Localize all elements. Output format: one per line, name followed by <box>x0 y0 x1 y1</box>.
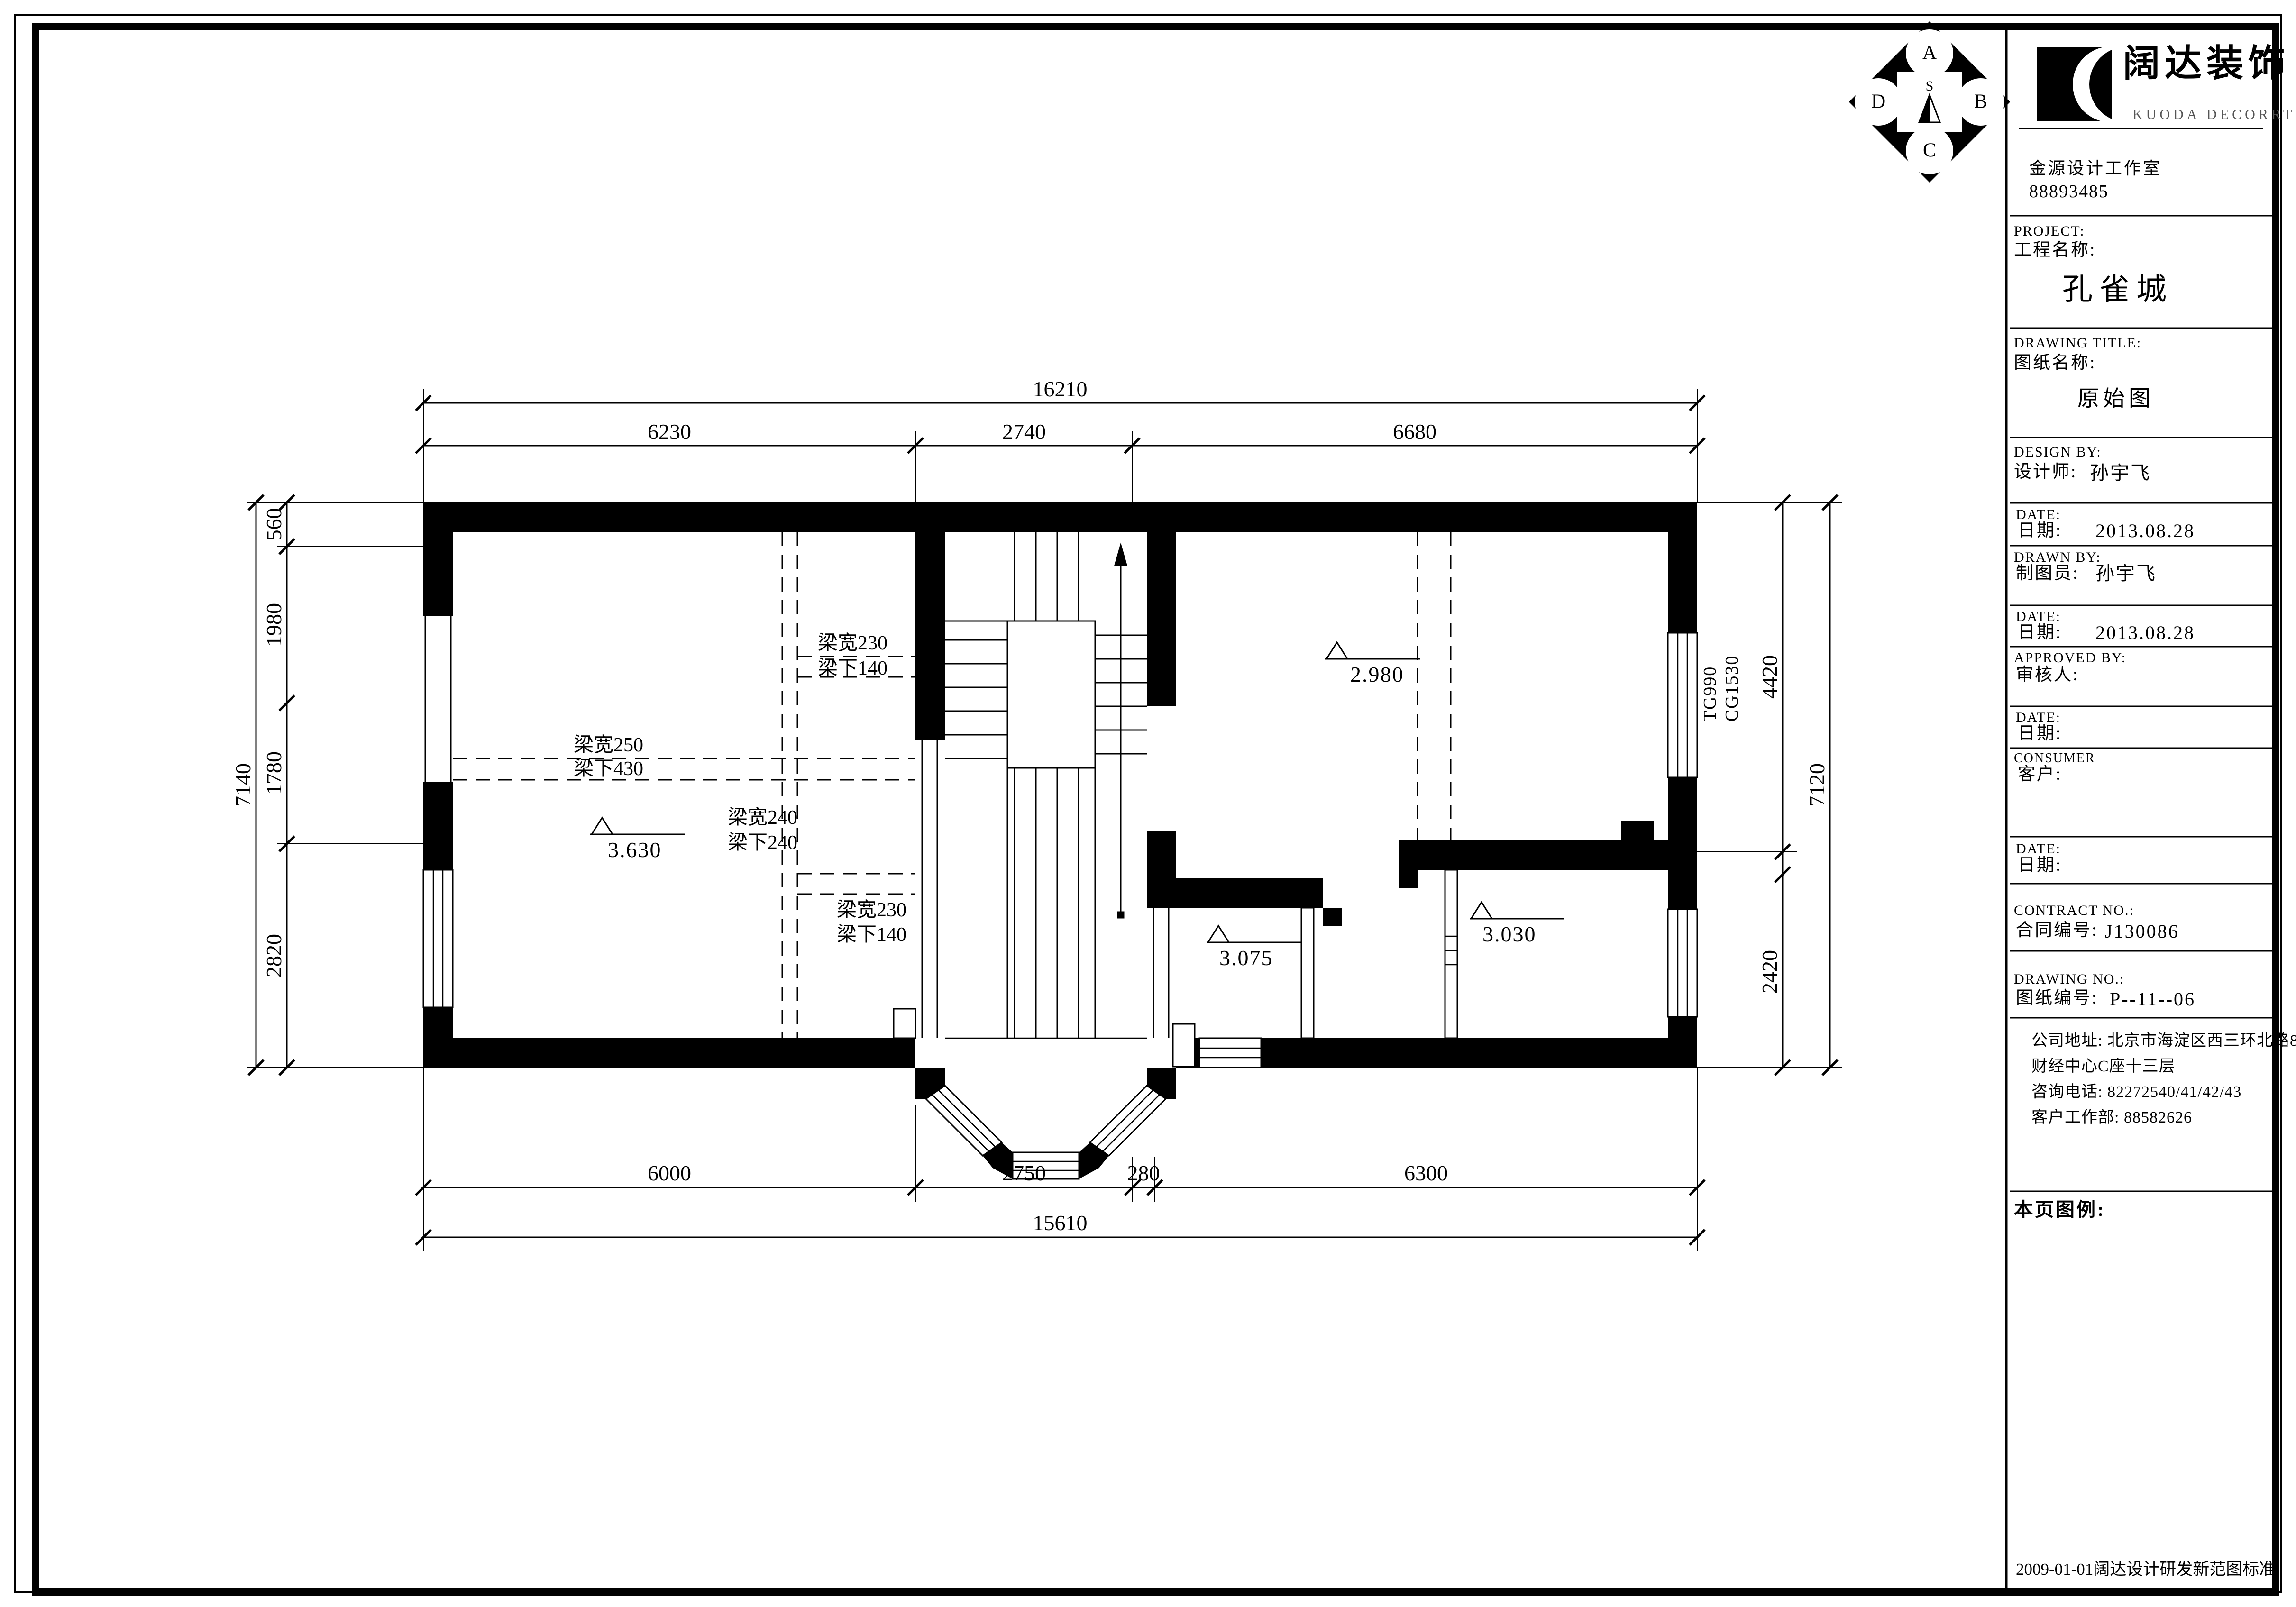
date1-label-en: DATE: <box>2016 507 2061 522</box>
drafter-name: 孙宇飞 <box>2095 563 2157 584</box>
address-line-2: 财经中心C座十三层 <box>2031 1058 2176 1076</box>
studio-phone: 88893485 <box>2029 182 2109 201</box>
window-left <box>423 870 453 1007</box>
level-3030: 3.030 <box>1482 922 1537 946</box>
brand-name-en: KUODA DECORRTION <box>2132 107 2296 122</box>
stair-direction-arrow <box>1115 545 1126 918</box>
dim-bottom-4: 6300 <box>1404 1161 1448 1185</box>
studio-name: 金源设计工作室 <box>2029 159 2162 178</box>
dim-right-2: 2420 <box>1758 950 1782 994</box>
project-label-en: PROJECT: <box>2014 224 2085 239</box>
drawing-title: 原始图 <box>2077 387 2154 411</box>
consumer-label-cn: 客户: <box>2018 765 2062 784</box>
drawing-sheet: 16210 6230 2740 6680 6000 2750 280 6300 … <box>0 0 2296 1607</box>
wall-openings <box>425 616 451 782</box>
compass-letter-d: D <box>1871 91 1885 112</box>
design-by-label-en: DESIGN BY: <box>2014 445 2102 460</box>
project-label-cn: 工程名称: <box>2014 241 2096 260</box>
drawing-no-label-en: DRAWING NO.: <box>2014 972 2124 987</box>
contract-label-cn: 合同编号: <box>2016 921 2098 940</box>
drawn-by-label-en: DRAWN BY: <box>2014 550 2101 565</box>
dim-top-3: 6680 <box>1393 420 1436 444</box>
address-line-4: 客户工作部: 88582626 <box>2031 1109 2192 1127</box>
level-3630: 3.630 <box>608 838 662 862</box>
contract-label-en: CONTRACT NO.: <box>2014 903 2134 918</box>
address-line-3: 咨询电话: 82272540/41/42/43 <box>2031 1084 2241 1101</box>
sheet-border <box>15 15 2281 1592</box>
wall-middle-right <box>1399 840 1680 870</box>
beam-label-1-width: 梁宽230 <box>818 633 887 654</box>
contract-no: J130086 <box>2105 921 2179 941</box>
beam-label-4-width: 梁宽230 <box>837 900 906 921</box>
window-right-upper <box>1668 633 1697 777</box>
wall-stair-right <box>1147 532 1176 706</box>
date3-label-en: DATE: <box>2016 710 2061 725</box>
window-tag: TG990 CG1530 <box>1699 655 1743 722</box>
date1-label-cn: 日期: <box>2018 521 2062 540</box>
dim-left-3: 1780 <box>262 751 286 795</box>
compass-letter-c: C <box>1923 140 1936 161</box>
wall-top <box>423 502 1697 532</box>
wall-bottom-left <box>423 1038 915 1068</box>
level-3075: 3.075 <box>1219 946 1273 970</box>
date2-label-en: DATE: <box>2016 609 2061 624</box>
address-line-1: 公司地址: 北京市海淀区西三环北路87号国际 <box>2031 1032 2296 1050</box>
compass-letter-a: A <box>1922 42 1937 64</box>
dim-bottom-1: 6000 <box>648 1161 691 1185</box>
beam-label-2-width: 梁宽250 <box>574 735 643 756</box>
approved-by-label-cn: 审核人: <box>2016 666 2079 685</box>
approved-by-label-en: APPROVED BY: <box>2014 650 2126 666</box>
window-right-lower <box>1668 909 1697 1017</box>
dim-right-1: 4420 <box>1758 655 1782 699</box>
date4-label-cn: 日期: <box>2018 856 2062 875</box>
dim-bottom-2: 2750 <box>1002 1161 1046 1185</box>
date4-label-en: DATE: <box>2016 841 2061 857</box>
drawing-no-label-cn: 图纸编号: <box>2016 989 2098 1008</box>
dim-top-2: 2740 <box>1002 420 1046 444</box>
date1-value: 2013.08.28 <box>2095 520 2195 541</box>
dim-top-1: 6230 <box>648 420 691 444</box>
staircase <box>945 532 1147 1038</box>
project-name: 孔雀城 <box>2062 273 2173 306</box>
dim-left-1: 560 <box>262 508 286 541</box>
designer-name: 孙宇飞 <box>2090 463 2151 483</box>
date3-label-cn: 日期: <box>2018 724 2062 743</box>
beam-label-2-drop: 梁下430 <box>574 758 643 780</box>
brand-name-cn: 阔达装饰 <box>2123 44 2290 83</box>
drawing-title-label-cn: 图纸名称: <box>2014 354 2096 373</box>
dim-left-total: 7140 <box>231 763 255 807</box>
design-by-label-cn: 设计师: <box>2014 463 2077 482</box>
compass-south-label: S <box>1926 79 1934 94</box>
beam-label-1-drop: 梁下140 <box>818 658 887 679</box>
consumer-label-en: CONSUMER <box>2014 751 2095 766</box>
window-bottom <box>1199 1038 1261 1068</box>
beam-label-3-width: 梁宽240 <box>728 807 797 829</box>
legend-label: 本页图例: <box>2014 1199 2105 1220</box>
footer-note: 2009-01-01阔达设计研发新范图标准 <box>2016 1561 2276 1579</box>
dim-left-4: 2820 <box>262 934 286 977</box>
wall-middle-left <box>1176 878 1323 908</box>
level-markers <box>590 642 1564 942</box>
dim-left-2: 1980 <box>262 603 286 647</box>
beam-label-4-drop: 梁下140 <box>837 924 906 946</box>
cad-linework <box>0 0 2296 1607</box>
wall-bottom-right <box>1261 1038 1697 1068</box>
plan-walls <box>423 502 1697 1068</box>
drawing-no: P--11--06 <box>2110 989 2195 1009</box>
drawing-title-label-en: DRAWING TITLE: <box>2014 336 2141 351</box>
compass-letter-b: B <box>1974 91 1987 112</box>
date2-label-cn: 日期: <box>2018 623 2062 642</box>
drawn-by-label-cn: 制图员: <box>2016 564 2079 583</box>
dim-top-total: 16210 <box>1033 377 1088 401</box>
beam-label-3-drop: 梁下240 <box>728 832 797 854</box>
wall-stair-left <box>915 532 945 740</box>
dim-right-total: 7120 <box>1805 763 1829 807</box>
date2-value: 2013.08.28 <box>2095 622 2195 643</box>
level-2980: 2.980 <box>1350 663 1404 686</box>
dim-bottom-3: 280 <box>1127 1161 1160 1185</box>
dim-bottom-total: 15610 <box>1033 1211 1088 1235</box>
